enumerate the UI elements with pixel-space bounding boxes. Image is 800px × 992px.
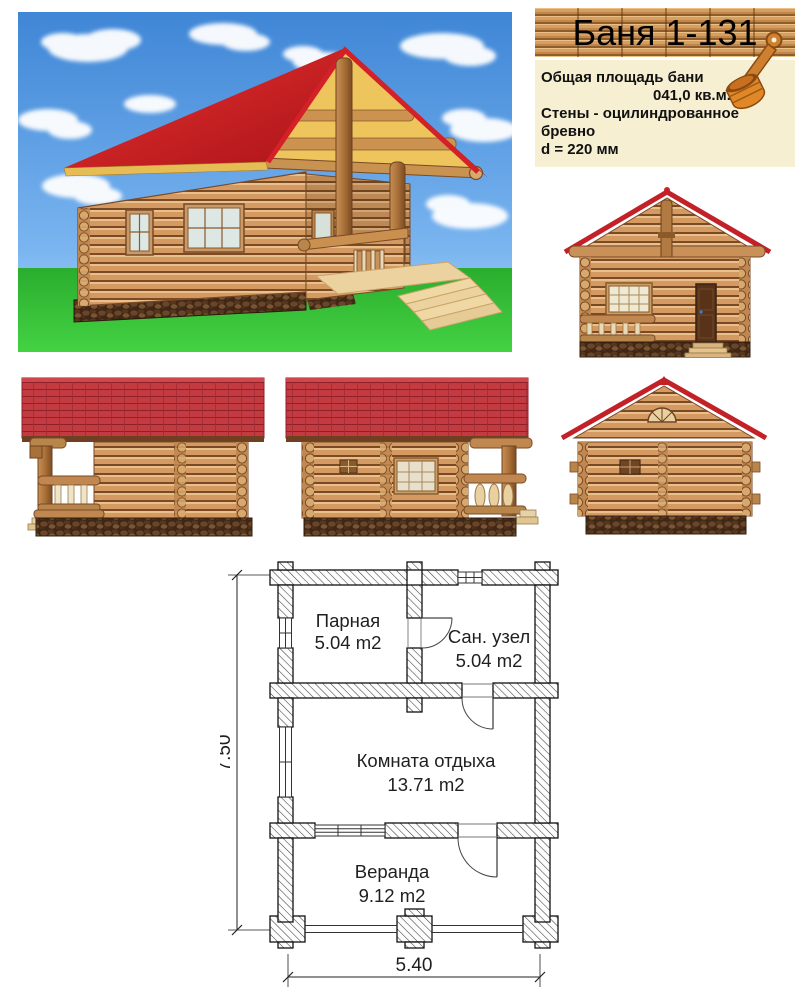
log-ends-corner (78, 208, 90, 306)
window (394, 458, 438, 494)
log-stub (752, 462, 760, 472)
small-window (620, 460, 640, 474)
small-window (340, 460, 357, 473)
log-wall (94, 442, 248, 518)
door-veranda (458, 838, 497, 877)
door (696, 284, 716, 343)
rail-log-end (298, 239, 310, 251)
left-elevation-view (8, 376, 270, 540)
porch-railing (464, 474, 526, 514)
door-sanuzel (462, 698, 493, 729)
foundation (304, 518, 516, 536)
gable-log (276, 138, 456, 150)
door-handle (699, 310, 702, 313)
window-veranda-wall (315, 825, 385, 836)
room-label-sanuzel: Сан. узел (448, 626, 530, 647)
page: Баня 1-131 Общая площадь бани 041,0 кв.м… (0, 0, 800, 992)
roof (22, 378, 264, 438)
ridge-cap (22, 378, 264, 382)
log-stub (570, 494, 578, 504)
right-elevation-view (280, 376, 540, 540)
ladle-icon (712, 28, 792, 120)
foundation (36, 518, 252, 536)
render-3d-view (18, 12, 512, 352)
log-stub (752, 494, 760, 504)
room-area-lounge: 13.71 m2 (387, 774, 464, 795)
window (606, 283, 652, 315)
room-area-parnaya: 5.04 m2 (315, 632, 382, 653)
room-label-veranda: Веранда (355, 861, 430, 882)
front-elevation-view (555, 180, 800, 375)
log-ends-joint (174, 442, 186, 518)
log-ends-corner (236, 442, 248, 518)
foundation (586, 516, 746, 534)
info-line-diameter: d = 220 мм (541, 141, 795, 159)
room-area-sanuzel: 5.04 m2 (456, 650, 523, 671)
window-glazing-lines (280, 572, 483, 836)
log-ends-corner (578, 442, 588, 516)
side-window-2 (184, 204, 244, 252)
back-elevation-view (548, 376, 798, 540)
gable-log (294, 110, 414, 121)
log-ends-corner (742, 442, 752, 516)
ridge-cap (286, 378, 528, 382)
porch-cap-beam (470, 438, 532, 448)
post-bracket (30, 446, 42, 458)
dimension-width-label: 5.40 (396, 955, 433, 976)
log-ends-corner (739, 257, 750, 342)
log-ends-joint (380, 442, 392, 518)
room-label-parnaya: Парная (316, 610, 380, 631)
dimension-depth-label: 7.50 (220, 735, 235, 772)
room-label-lounge: Комната отдыха (357, 750, 496, 771)
room-area-veranda: 9.12 m2 (359, 885, 426, 906)
log-ends-joint (658, 442, 668, 516)
side-window-1 (126, 210, 153, 255)
log-stub (570, 462, 578, 472)
log-ends-corner (302, 442, 314, 518)
window-symbols (280, 572, 483, 836)
floor-plan: Парная 5.04 m2 Сан. узел 5.04 m2 Комната… (220, 550, 580, 992)
post-collar (658, 232, 675, 238)
roof (286, 378, 528, 438)
